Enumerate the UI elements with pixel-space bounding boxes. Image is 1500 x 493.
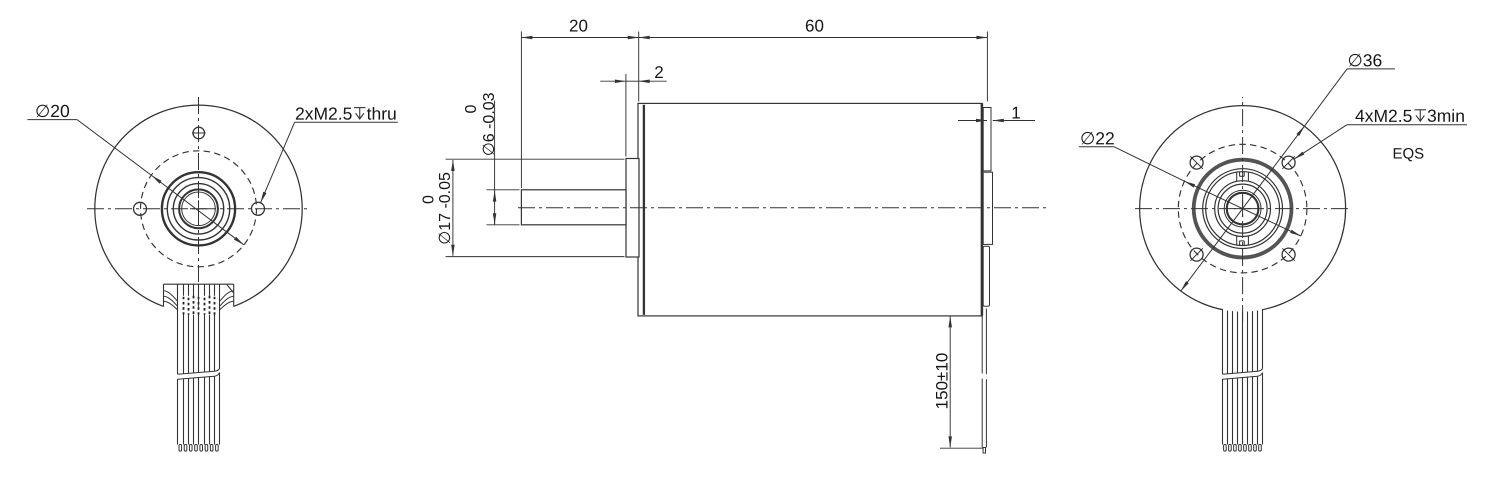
svg-text:4xM2.5: 4xM2.5 [1355,106,1412,126]
svg-text:thru: thru [367,104,397,124]
svg-text:3min: 3min [1427,106,1465,126]
svg-text:1: 1 [1011,103,1020,122]
svg-text:∅6 -0.03: ∅6 -0.03 [481,92,498,156]
svg-text:∅22: ∅22 [1080,128,1115,148]
svg-text:60: 60 [805,16,824,35]
svg-text:∅17 -0.05: ∅17 -0.05 [437,172,454,245]
svg-text:∅36: ∅36 [1347,50,1382,70]
svg-text:2: 2 [654,63,663,82]
svg-text:2xM2.5: 2xM2.5 [295,104,352,124]
svg-text:∅20: ∅20 [35,101,70,121]
svg-text:EQS: EQS [1392,146,1424,163]
svg-text:0: 0 [463,104,480,113]
svg-text:150±10: 150±10 [933,353,952,410]
svg-text:20: 20 [569,16,588,35]
svg-text:0: 0 [421,195,438,204]
